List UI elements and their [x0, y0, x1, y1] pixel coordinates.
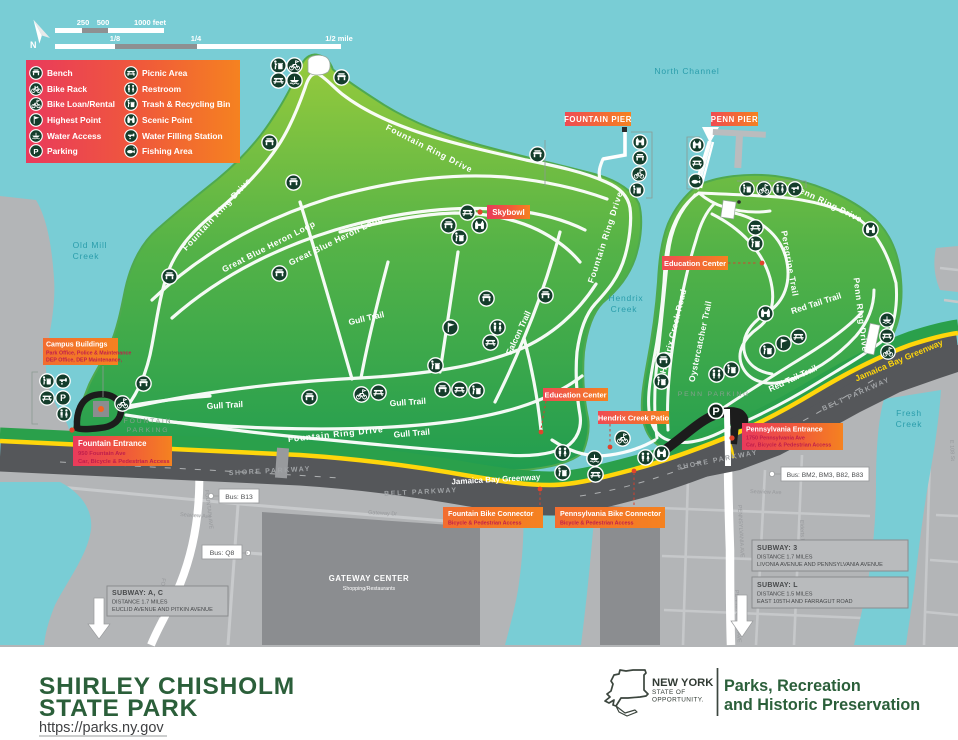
svg-text:Bicycle & Pedestrian Access: Bicycle & Pedestrian Access	[560, 521, 634, 527]
svg-text:DISTANCE 1.5 MILES: DISTANCE 1.5 MILES	[757, 592, 813, 598]
svg-text:EUCLID AVENUE AND PITKIN AVENU: EUCLID AVENUE AND PITKIN AVENUE	[112, 607, 213, 613]
svg-text:Water Access: Water Access	[47, 131, 102, 141]
svg-text:FOUNTAIN PIER: FOUNTAIN PIER	[564, 115, 632, 124]
svg-text:Bus: B13: Bus: B13	[225, 494, 253, 501]
svg-text:Hendrix: Hendrix	[609, 293, 644, 303]
svg-text:Bus: Q8: Bus: Q8	[210, 550, 235, 557]
svg-text:Creek: Creek	[611, 304, 638, 314]
svg-text:and Historic Preservation: and Historic Preservation	[724, 696, 920, 714]
svg-text:Skybowl: Skybowl	[492, 208, 524, 217]
svg-text:1000 feet: 1000 feet	[134, 18, 167, 27]
svg-text:Shopping/Restaurants: Shopping/Restaurants	[343, 586, 396, 592]
svg-text:Car, Bicycle & Pedestrian Acce: Car, Bicycle & Pedestrian Access	[78, 459, 170, 465]
svg-text:Park Office, Police & Maintena: Park Office, Police & Maintenance	[46, 351, 131, 357]
svg-text:North Channel: North Channel	[654, 66, 719, 76]
svg-text:Water Filling Station: Water Filling Station	[142, 131, 223, 141]
svg-text:DEP Office, DEP Maintenance,: DEP Office, DEP Maintenance,	[46, 358, 123, 364]
svg-text:Highest Point: Highest Point	[47, 115, 101, 125]
svg-text:Bike Rack: Bike Rack	[47, 84, 87, 94]
svg-text:https://parks.ny.gov: https://parks.ny.gov	[39, 720, 164, 736]
svg-text:Creek: Creek	[896, 419, 923, 429]
svg-text:Bench: Bench	[47, 68, 73, 78]
svg-text:Education Center: Education Center	[544, 391, 606, 400]
svg-text:SUBWAY: A, C: SUBWAY: A, C	[112, 590, 163, 597]
svg-text:GATEWAY CENTER: GATEWAY CENTER	[329, 574, 410, 583]
svg-text:Car, Bicycle & Pedestrian Acce: Car, Bicycle & Pedestrian Access	[746, 443, 831, 449]
svg-text:NEW YORK: NEW YORK	[652, 677, 713, 689]
svg-text:SUBWAY: 3: SUBWAY: 3	[757, 545, 797, 552]
svg-text:Trash & Recycling Bin: Trash & Recycling Bin	[142, 99, 230, 109]
svg-text:Fresh: Fresh	[896, 408, 922, 418]
svg-text:SUBWAY: L: SUBWAY: L	[757, 582, 798, 589]
svg-text:Fountain Bike Connector: Fountain Bike Connector	[448, 509, 534, 518]
svg-text:PENN PARKING: PENN PARKING	[678, 391, 750, 398]
svg-text:250: 250	[77, 18, 90, 27]
svg-text:E 108 St: E 108 St	[948, 440, 955, 462]
svg-text:Fountain Entrance: Fountain Entrance	[78, 439, 147, 448]
svg-text:Seaview Ave: Seaview Ave	[750, 489, 782, 496]
svg-text:FOUNTAIN: FOUNTAIN	[124, 418, 173, 425]
svg-text:1/8: 1/8	[110, 34, 120, 43]
svg-text:DISTANCE 1.7 MILES: DISTANCE 1.7 MILES	[757, 555, 813, 561]
svg-text:P: P	[712, 406, 719, 418]
svg-text:950 Fountain Ave: 950 Fountain Ave	[78, 451, 126, 457]
svg-text:Pennsylvania Entrance: Pennsylvania Entrance	[746, 427, 823, 434]
svg-text:STATE PARK: STATE PARK	[39, 695, 198, 722]
svg-text:Fishing Area: Fishing Area	[142, 146, 193, 156]
svg-text:Scenic Point: Scenic Point	[142, 115, 192, 125]
svg-text:PENN PIER: PENN PIER	[711, 115, 758, 124]
svg-text:OPPORTUNITY.: OPPORTUNITY.	[652, 697, 704, 704]
svg-text:Campus Buildings: Campus Buildings	[46, 342, 108, 349]
svg-text:Bike Loan/Rental: Bike Loan/Rental	[47, 99, 115, 109]
svg-text:LIVONIA AVENUE AND PENNSYLVANI: LIVONIA AVENUE AND PENNSYLVANIA AVENUE	[757, 562, 883, 568]
svg-text:N: N	[30, 40, 37, 50]
svg-text:DISTANCE 1.7 MILES: DISTANCE 1.7 MILES	[112, 600, 168, 606]
svg-text:Bus: BM2, BM3, B82, B83: Bus: BM2, BM3, B82, B83	[787, 472, 864, 479]
svg-text:STATE OF: STATE OF	[652, 689, 686, 696]
svg-text:Pennsylvania Bike Connector: Pennsylvania Bike Connector	[560, 509, 661, 518]
svg-text:Gull Trail: Gull Trail	[206, 399, 243, 411]
svg-text:Education Center: Education Center	[664, 259, 726, 268]
svg-text:EAST 105TH AND FARRAGUT ROAD: EAST 105TH AND FARRAGUT ROAD	[757, 599, 853, 605]
svg-text:500: 500	[97, 18, 110, 27]
svg-text:Bicycle & Pedestrian Access: Bicycle & Pedestrian Access	[448, 521, 522, 527]
svg-text:Parks, Recreation: Parks, Recreation	[724, 677, 861, 695]
svg-text:1/2 mile: 1/2 mile	[325, 34, 353, 43]
svg-text:Hendrix Creek Patio: Hendrix Creek Patio	[598, 414, 670, 423]
svg-text:Picnic Area: Picnic Area	[142, 68, 188, 78]
svg-text:Creek: Creek	[73, 251, 100, 261]
svg-text:Old Mill: Old Mill	[73, 240, 108, 250]
svg-text:Restroom: Restroom	[142, 84, 181, 94]
svg-text:PARKING: PARKING	[127, 427, 170, 434]
svg-text:Parking: Parking	[47, 146, 78, 156]
svg-text:1750 Pennsylvania Ave: 1750 Pennsylvania Ave	[746, 436, 805, 442]
svg-text:1/4: 1/4	[191, 34, 202, 43]
